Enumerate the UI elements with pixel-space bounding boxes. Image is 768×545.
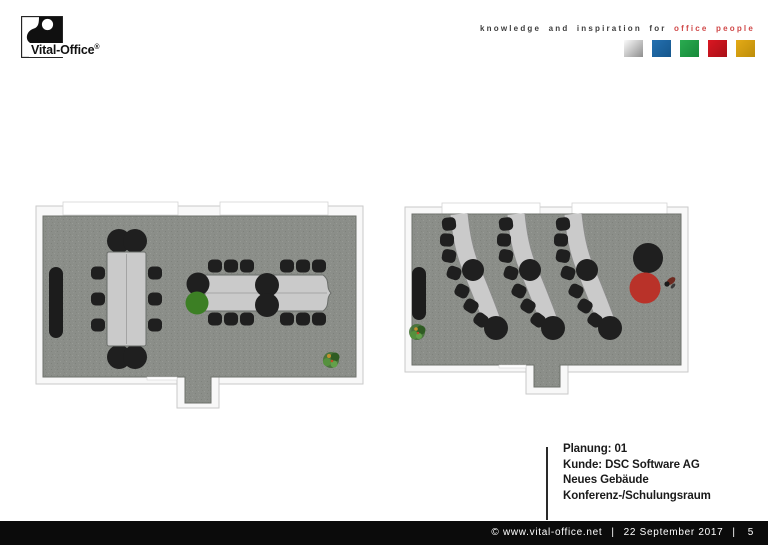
footer-copyright: © www.vital-office.net bbox=[491, 527, 602, 538]
brand-square-green bbox=[680, 40, 699, 57]
door-leaf bbox=[147, 377, 177, 380]
brand-square-red bbox=[708, 40, 727, 57]
footer-separator: | bbox=[611, 527, 614, 538]
brand-color-squares bbox=[624, 40, 755, 57]
plan-info-line-kunde: Kunde: DSC Software AG bbox=[563, 458, 711, 474]
plan-info-line-raum: Konferenz-/Schulungsraum bbox=[563, 489, 711, 505]
window bbox=[220, 202, 328, 215]
slide-page: Vital-Office® knowledge and inspiration … bbox=[0, 0, 768, 545]
presenter-chair bbox=[633, 243, 663, 273]
green-stool bbox=[186, 292, 209, 315]
sideboard bbox=[412, 267, 426, 320]
logo-brand: Vital-Office bbox=[31, 43, 94, 57]
right-floor-plan bbox=[404, 201, 690, 397]
door-leaf bbox=[499, 365, 526, 368]
footer-bar: © www.vital-office.net|22 September 2017… bbox=[0, 521, 768, 545]
sideboard bbox=[49, 267, 63, 338]
plan-info-line-gebaeude: Neues Gebäude bbox=[563, 473, 711, 489]
info-vertical-rule bbox=[546, 447, 548, 520]
tagline-prefix: knowledge and inspiration for bbox=[480, 24, 667, 33]
brand-square-silver bbox=[624, 40, 643, 57]
logo-wordmark: Vital-Office® bbox=[29, 43, 101, 57]
footer-page-number: 5 bbox=[748, 527, 754, 538]
brand-square-blue bbox=[652, 40, 671, 57]
window bbox=[63, 202, 178, 215]
presenter-red-table bbox=[630, 273, 661, 304]
plant bbox=[323, 352, 340, 368]
registered-mark: ® bbox=[94, 44, 99, 51]
footer-separator: | bbox=[732, 527, 735, 538]
plan-info-line-planung: Planung: 01 bbox=[563, 442, 711, 458]
footer-date: 22 September 2017 bbox=[624, 527, 724, 538]
tagline: knowledge and inspiration for office peo… bbox=[480, 24, 755, 33]
tagline-highlight: office people bbox=[674, 24, 755, 33]
plan-info-block: Planung: 01 Kunde: DSC Software AG Neues… bbox=[563, 442, 711, 504]
brand-square-gold bbox=[736, 40, 755, 57]
left-floor-plan bbox=[35, 198, 365, 410]
